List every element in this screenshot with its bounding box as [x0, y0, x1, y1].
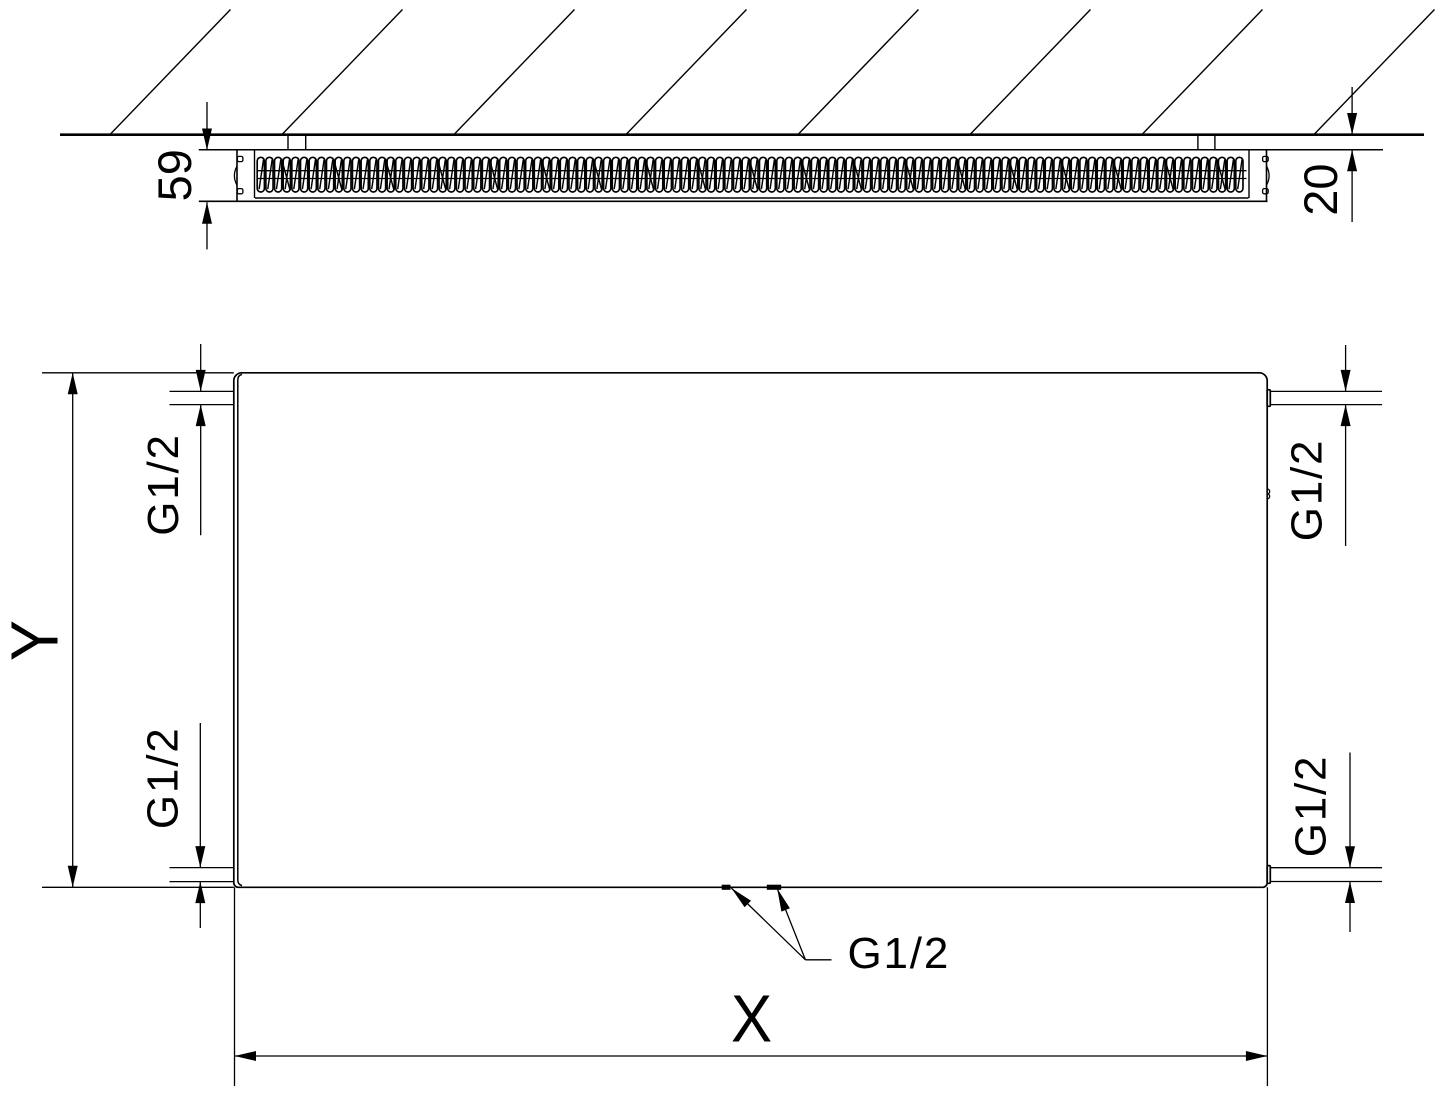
svg-text:G1/2: G1/2	[139, 433, 188, 536]
svg-text:X: X	[731, 981, 772, 1056]
svg-text:G1/2: G1/2	[1283, 439, 1332, 542]
svg-text:G1/2: G1/2	[138, 727, 187, 830]
svg-text:G1/2: G1/2	[1287, 755, 1336, 858]
svg-text:G1/2: G1/2	[848, 929, 951, 978]
svg-text:59: 59	[148, 149, 201, 201]
svg-text:Y: Y	[0, 620, 72, 661]
svg-text:20: 20	[1294, 163, 1347, 215]
